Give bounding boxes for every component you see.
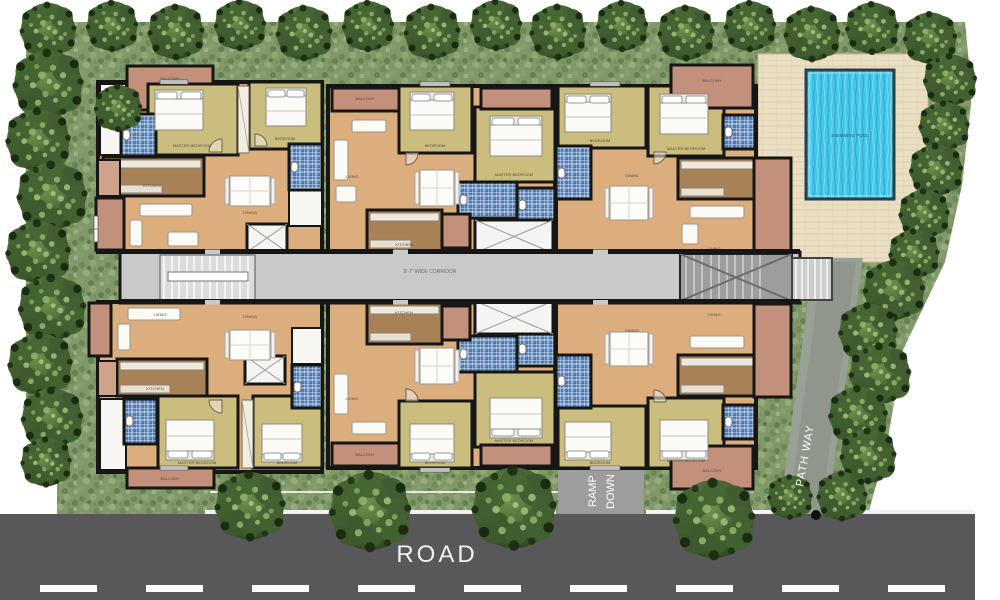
svg-text:BALCONY: BALCONY bbox=[355, 96, 374, 101]
svg-text:BEDROOM: BEDROOM bbox=[425, 143, 446, 148]
svg-text:KITCHEN: KITCHEN bbox=[395, 310, 413, 315]
svg-text:DOWN: DOWN bbox=[605, 474, 617, 509]
svg-text:MASTER BEDROOM: MASTER BEDROOM bbox=[178, 460, 216, 465]
svg-text:MASTER BEDROOM: MASTER BEDROOM bbox=[667, 146, 705, 151]
svg-text:BEDROOM: BEDROOM bbox=[277, 460, 298, 465]
svg-text:BALCONY: BALCONY bbox=[702, 78, 721, 83]
svg-text:MASTER BEDROOM: MASTER BEDROOM bbox=[495, 438, 533, 443]
svg-text:BEDROOM: BEDROOM bbox=[425, 460, 446, 465]
svg-text:LIVING: LIVING bbox=[345, 174, 358, 179]
svg-text:LIVING: LIVING bbox=[345, 396, 358, 401]
svg-text:BEDROOM: BEDROOM bbox=[275, 136, 296, 141]
svg-text:MASTER BEDROOM: MASTER BEDROOM bbox=[173, 143, 211, 148]
svg-text:ROAD: ROAD bbox=[396, 541, 477, 568]
svg-text:DINING: DINING bbox=[243, 210, 257, 215]
svg-text:BALCONY: BALCONY bbox=[355, 452, 374, 457]
svg-text:BEDROOM: BEDROOM bbox=[590, 460, 611, 465]
svg-text:LIVING: LIVING bbox=[153, 312, 166, 317]
svg-text:BALCONY: BALCONY bbox=[702, 468, 721, 473]
svg-text:RAMP: RAMP bbox=[587, 475, 599, 507]
svg-text:DINING: DINING bbox=[625, 328, 639, 333]
svg-text:BEDROOM: BEDROOM bbox=[590, 138, 611, 143]
svg-text:LIVING: LIVING bbox=[707, 312, 720, 317]
svg-text:KITCHEN: KITCHEN bbox=[143, 183, 161, 188]
svg-text:KITCHEN: KITCHEN bbox=[146, 386, 164, 391]
svg-text:KITCHEN: KITCHEN bbox=[395, 242, 413, 247]
svg-text:MASTER BEDROOM: MASTER BEDROOM bbox=[667, 458, 705, 463]
svg-text:MASTER BEDROOM: MASTER BEDROOM bbox=[495, 172, 533, 177]
svg-text:SWIMMING POOL: SWIMMING POOL bbox=[831, 133, 869, 138]
svg-text:DINING: DINING bbox=[243, 314, 257, 319]
svg-text:BALCONY: BALCONY bbox=[160, 476, 179, 481]
svg-text:8'-7" WIDE CORRIDOR: 8'-7" WIDE CORRIDOR bbox=[403, 269, 456, 275]
svg-text:DINING: DINING bbox=[625, 173, 639, 178]
